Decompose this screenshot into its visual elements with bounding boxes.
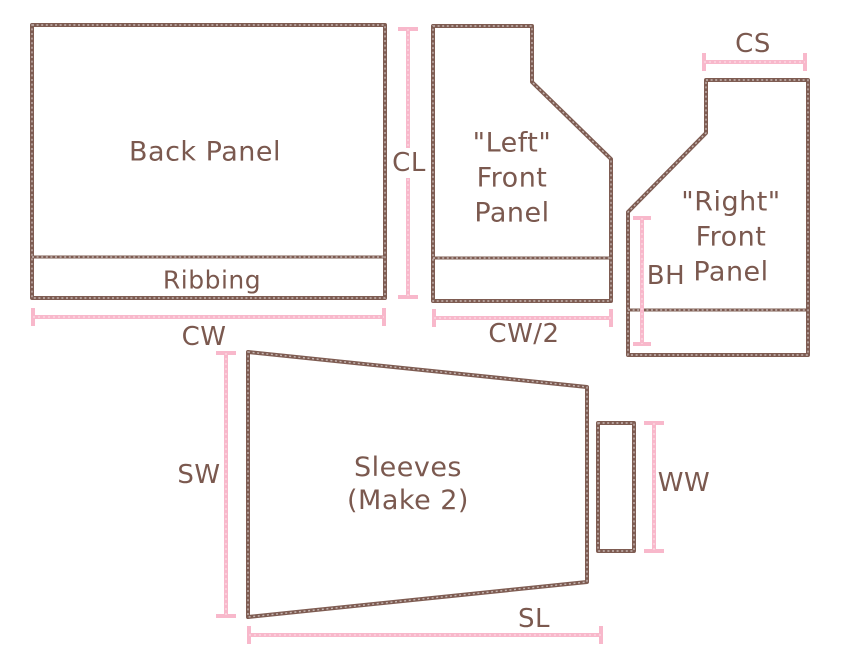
right-front-line-2: Front bbox=[681, 220, 780, 255]
sw-dimension-label: SW bbox=[177, 462, 220, 488]
sweater-pattern-diagram: Back Panel Ribbing "Left" Front Panel "R… bbox=[0, 0, 842, 659]
sl-dimension-label: SL bbox=[518, 606, 550, 632]
left-front-line-1: "Left" bbox=[473, 126, 552, 161]
bh-dimension-label: BH bbox=[644, 261, 688, 291]
ww-dimension-label: WW bbox=[658, 470, 710, 496]
cl-dimension-label: CL bbox=[389, 148, 429, 178]
left-front-line-2: Front bbox=[473, 161, 552, 196]
pattern-shapes-layer bbox=[0, 0, 842, 659]
cs-dimension-label: CS bbox=[735, 31, 771, 57]
back-panel-ribbing-label: Ribbing bbox=[163, 263, 261, 298]
cw-half-dimension-label: CW/2 bbox=[488, 321, 559, 347]
sleeve-line-1: Sleeves bbox=[347, 451, 469, 484]
right-front-line-1: "Right" bbox=[681, 185, 780, 220]
sleeve-label: Sleeves (Make 2) bbox=[347, 451, 469, 517]
left-front-panel-label: "Left" Front Panel bbox=[473, 126, 552, 231]
cuff-texture bbox=[598, 423, 634, 551]
cw-dimension-label: CW bbox=[182, 324, 227, 350]
cuff-outline bbox=[598, 423, 634, 551]
back-panel-label: Back Panel bbox=[129, 135, 281, 170]
cuff-shape bbox=[598, 423, 634, 551]
left-front-line-3: Panel bbox=[473, 196, 552, 231]
right-front-line-3: Panel bbox=[681, 255, 780, 290]
right-front-panel-label: "Right" Front Panel bbox=[681, 185, 780, 290]
sleeve-line-2: (Make 2) bbox=[347, 484, 469, 517]
